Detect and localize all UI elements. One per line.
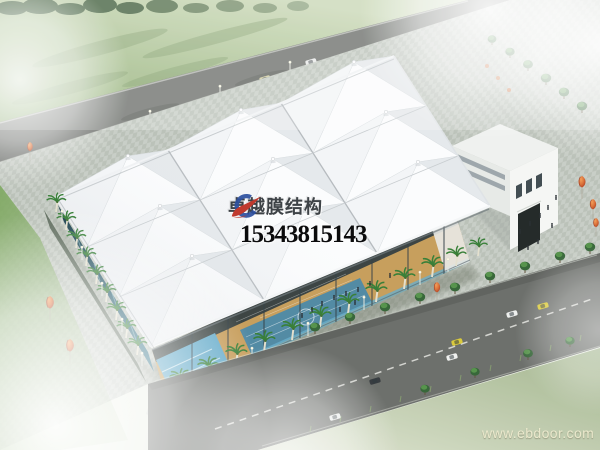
scene-rendering <box>0 0 600 450</box>
rendering-image: 卓越膜结构 15343815143 www.ebdoor.com <box>0 0 600 450</box>
mist-overlay <box>0 0 600 450</box>
